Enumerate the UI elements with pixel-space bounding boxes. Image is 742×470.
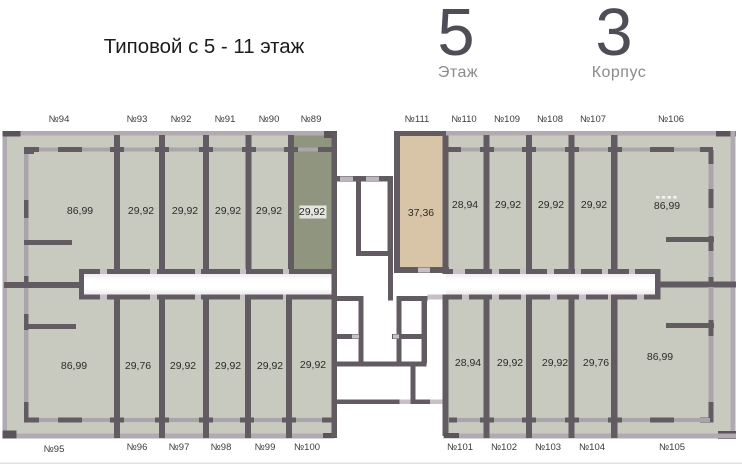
svg-text:№111: №111: [405, 114, 430, 125]
svg-text:№98: №98: [211, 442, 232, 453]
svg-text:№100: №100: [294, 442, 320, 453]
svg-text:37,36: 37,36: [408, 207, 434, 219]
svg-text:28,94: 28,94: [455, 357, 481, 369]
svg-text:29,92: 29,92: [256, 205, 282, 217]
svg-text:№106: №106: [658, 114, 684, 125]
svg-text:29,92: 29,92: [215, 360, 241, 372]
svg-text:29,92: 29,92: [128, 205, 154, 217]
svg-text:№99: №99: [255, 442, 276, 453]
svg-text:Этаж: Этаж: [438, 64, 478, 81]
svg-text:5: 5: [437, 0, 474, 70]
svg-text:29,76: 29,76: [125, 360, 151, 372]
svg-text:№96: №96: [127, 442, 148, 453]
svg-text:№91: №91: [215, 114, 236, 125]
svg-text:№107: №107: [580, 114, 606, 125]
svg-text:29,92: 29,92: [300, 359, 326, 371]
svg-text:29,92: 29,92: [538, 199, 564, 211]
svg-text:29,92: 29,92: [299, 206, 325, 218]
svg-text:86,99: 86,99: [61, 360, 87, 372]
svg-text:86,99: 86,99: [654, 200, 680, 212]
svg-text:№89: №89: [301, 114, 322, 125]
svg-text:№93: №93: [127, 114, 148, 125]
svg-text:№109: №109: [494, 114, 520, 125]
svg-text:29,92: 29,92: [581, 199, 607, 211]
svg-text:86,99: 86,99: [647, 351, 673, 363]
svg-text:29,92: 29,92: [215, 205, 241, 217]
svg-text:№101: №101: [447, 442, 473, 453]
svg-text:29,92: 29,92: [170, 360, 196, 372]
svg-text:№110: №110: [451, 114, 476, 125]
svg-text:86,99: 86,99: [67, 205, 93, 217]
svg-text:29,92: 29,92: [495, 199, 521, 211]
svg-text:№92: №92: [171, 114, 192, 125]
svg-text:№94: №94: [49, 114, 70, 125]
svg-text:Корпус: Корпус: [592, 64, 647, 81]
svg-text:29,92: 29,92: [172, 205, 198, 217]
svg-text:№104: №104: [579, 442, 605, 453]
svg-text:3: 3: [595, 0, 632, 70]
svg-text:№103: №103: [535, 442, 561, 453]
svg-text:29,92: 29,92: [257, 360, 283, 372]
svg-text:№95: №95: [44, 444, 65, 455]
svg-text:№97: №97: [169, 442, 190, 453]
svg-text:№102: №102: [491, 442, 517, 453]
svg-text:№108: №108: [537, 114, 563, 125]
svg-text:28,94: 28,94: [452, 199, 478, 211]
svg-text:29,76: 29,76: [583, 357, 609, 369]
svg-text:№105: №105: [659, 442, 685, 453]
svg-text:29,92: 29,92: [497, 357, 523, 369]
svg-text:№90: №90: [259, 114, 280, 125]
svg-text:Типовой с 5 - 11 этаж: Типовой с 5 - 11 этаж: [104, 36, 305, 58]
svg-text:29,92: 29,92: [542, 357, 568, 369]
